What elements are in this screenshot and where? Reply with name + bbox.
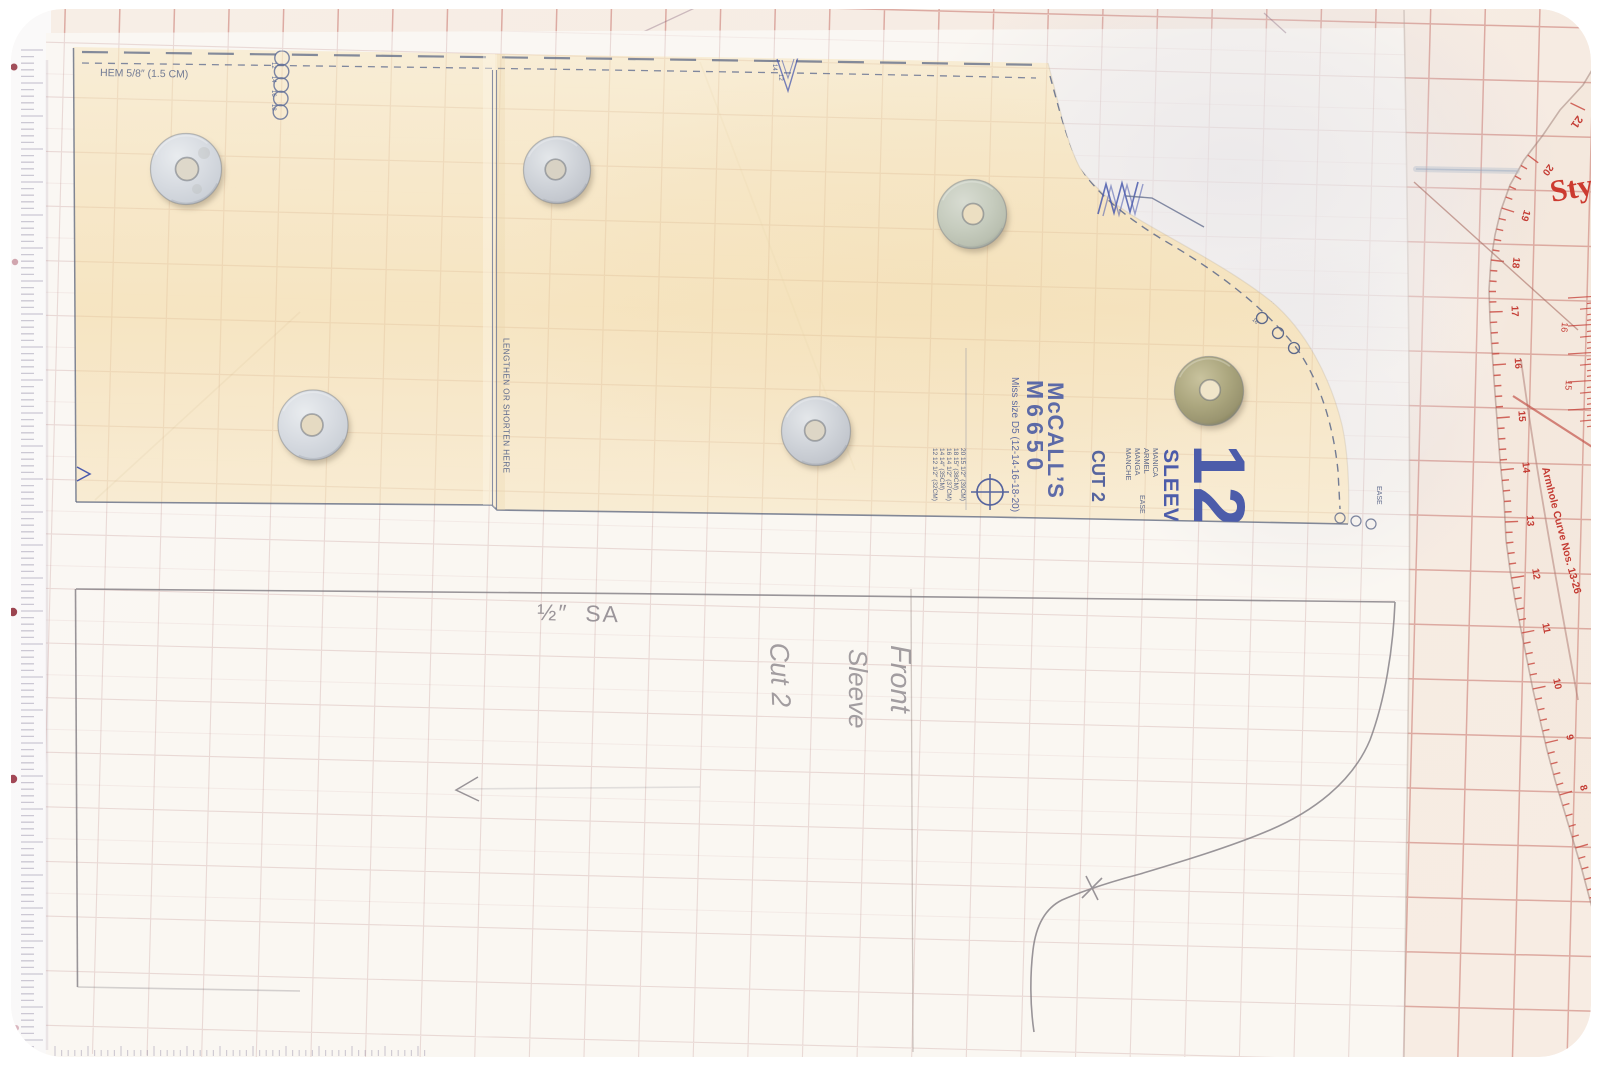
svg-text:MANICA: MANICA <box>1151 448 1160 477</box>
svg-text:½″ SA: ½″ SA <box>537 599 620 627</box>
svg-text:12: 12 <box>777 74 783 81</box>
svg-text:20 15 1/2″ (39CM): 20 15 1/2″ (39CM) <box>959 448 966 501</box>
svg-text:12 12 1/2″ (32CM): 12 12 1/2″ (32CM) <box>931 448 938 501</box>
svg-text:14: 14 <box>771 64 777 71</box>
svg-text:12: 12 <box>270 62 276 69</box>
svg-text:16 14 1/2″ (37CM): 16 14 1/2″ (37CM) <box>945 448 952 501</box>
svg-text:18 15″ (38CM): 18 15″ (38CM) <box>952 448 959 490</box>
svg-text:12: 12 <box>1529 568 1542 581</box>
svg-text:Miss size D5 (12-14-16-18-20): Miss size D5 (12-14-16-18-20) <box>1009 377 1020 512</box>
svg-text:EASE: EASE <box>1138 495 1145 514</box>
svg-text:Cut 2: Cut 2 <box>764 642 796 708</box>
svg-text:Sleeve: Sleeve <box>843 649 873 729</box>
svg-text:18: 18 <box>1509 257 1521 270</box>
svg-text:LENGTHEN OR SHORTEN HERE: LENGTHEN OR SHORTEN HERE <box>502 338 511 473</box>
svg-text:14 14″ (35CM): 14 14″ (35CM) <box>938 448 945 490</box>
svg-text:EASE: EASE <box>1375 486 1382 505</box>
svg-text:14: 14 <box>1519 461 1531 474</box>
svg-text:MANCHE: MANCHE <box>1124 448 1133 481</box>
svg-text:16: 16 <box>1559 322 1570 333</box>
svg-text:ARMEL: ARMEL <box>1142 448 1151 474</box>
svg-text:15: 15 <box>1515 410 1527 422</box>
svg-text:15: 15 <box>1563 380 1574 391</box>
svg-text:Front: Front <box>884 645 916 715</box>
svg-text:McCALL’S: McCALL’S <box>1043 382 1068 499</box>
svg-text:CUT 2: CUT 2 <box>1088 450 1108 502</box>
svg-text:MANGA: MANGA <box>1133 448 1142 476</box>
svg-text:17: 17 <box>1509 305 1520 317</box>
svg-text:HEM 5/8″ (1.5 CM): HEM 5/8″ (1.5 CM) <box>100 67 189 81</box>
svg-text:16: 16 <box>270 90 276 97</box>
svg-text:13: 13 <box>1524 515 1536 527</box>
svg-text:Sty: Sty <box>1547 167 1596 209</box>
svg-text:18: 18 <box>270 104 276 111</box>
svg-text:12: 12 <box>1178 444 1259 529</box>
svg-text:14: 14 <box>270 76 276 83</box>
